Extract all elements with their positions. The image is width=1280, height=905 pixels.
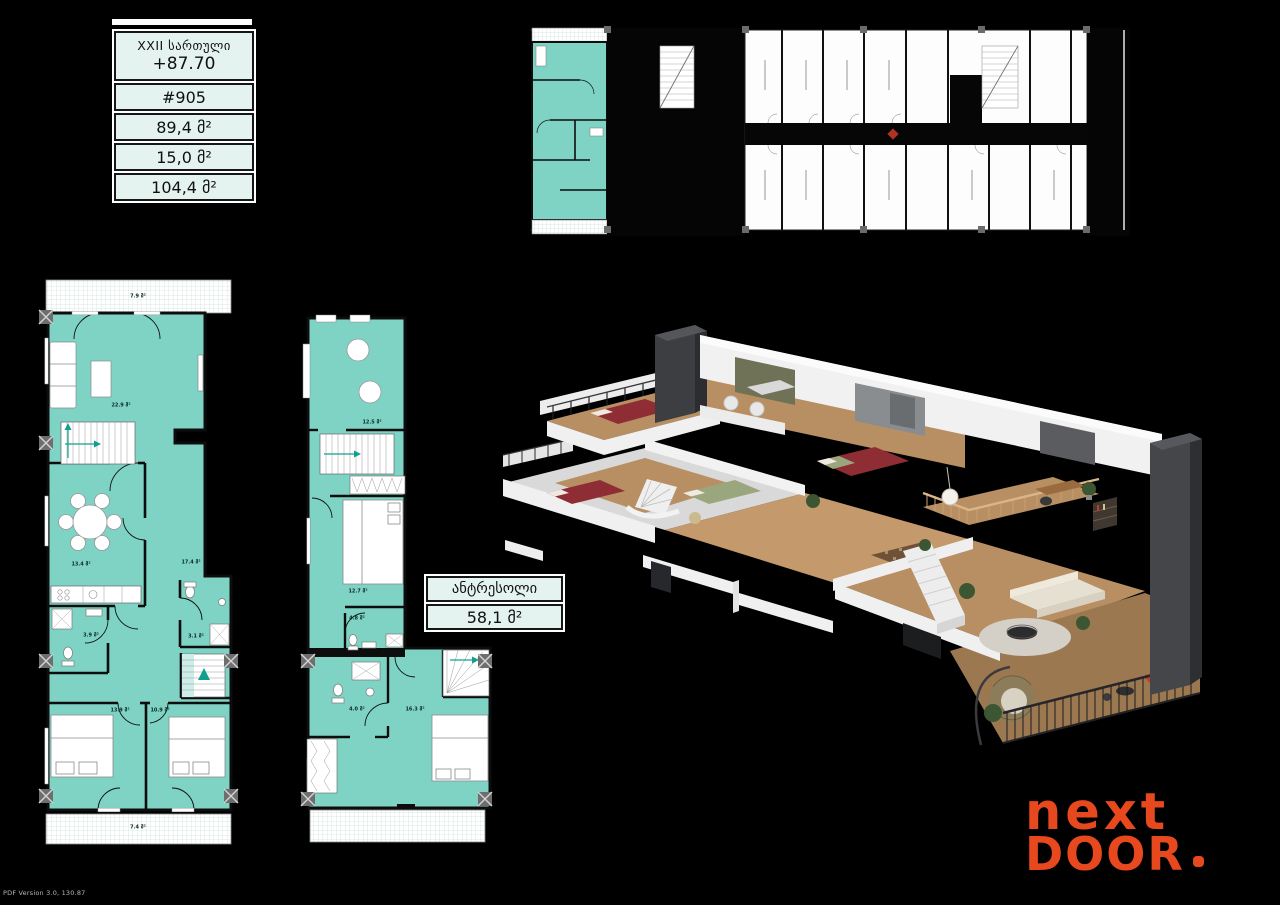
room-label: 7.4 მ² bbox=[130, 826, 146, 831]
floor-cell: XXII სართული +87.70 bbox=[114, 31, 254, 81]
bookshelf bbox=[1093, 497, 1117, 531]
room-label: 12.7 მ² bbox=[348, 590, 367, 595]
coffee-table bbox=[1007, 625, 1037, 640]
key-plan-highlighted-unit bbox=[532, 28, 607, 234]
unit-number: #905 bbox=[162, 88, 206, 107]
mezz-balcony bbox=[310, 810, 485, 842]
room-label: 22.9 მ² bbox=[111, 404, 130, 409]
total-area: 104,4 მ² bbox=[151, 178, 217, 197]
room-label: 7.9 მ² bbox=[130, 295, 146, 300]
mezz-stairs bbox=[320, 434, 394, 474]
dark-wardrobe-tower bbox=[655, 325, 707, 423]
bedroom-2-bed bbox=[169, 717, 225, 777]
total-area-cell: 104,4 მ² bbox=[114, 173, 254, 201]
room-label: 13.4 მ² bbox=[71, 563, 90, 568]
living-area-cell: 89,4 მ² bbox=[114, 113, 254, 141]
elevation-value: +87.70 bbox=[153, 54, 216, 74]
room-label: 12.5 მ² bbox=[362, 421, 381, 426]
room-label: 4.8 მ² bbox=[349, 617, 365, 622]
table-top-strip bbox=[112, 19, 252, 25]
wardrobe-top bbox=[350, 476, 405, 494]
key-plan-core bbox=[607, 28, 745, 236]
render-3d bbox=[495, 293, 1205, 753]
key-plan-units-band bbox=[745, 30, 1087, 230]
room-label: 17.4 მ² bbox=[181, 561, 200, 566]
key-plan-right-end bbox=[1087, 28, 1130, 236]
floor-key-plan bbox=[530, 20, 1130, 245]
unit-info-table: XXII სართული +87.70 #905 89,4 მ² 15,0 მ²… bbox=[112, 29, 256, 203]
room-label: 3.1 მ² bbox=[188, 635, 204, 640]
logo-dot-icon bbox=[1193, 856, 1204, 867]
room-label: 10.9 მ² bbox=[150, 709, 169, 714]
stairs-secondary bbox=[182, 654, 225, 697]
radiator bbox=[303, 344, 310, 398]
mezzanine-loft bbox=[923, 467, 1099, 525]
floor-label: XXII სართული bbox=[137, 38, 231, 53]
room-label: 4.0 მ² bbox=[349, 708, 365, 713]
room-label: 3.9 მ² bbox=[83, 634, 99, 639]
main-level-plan: 7.9 მ² 22.9 მ² 13.4 მ² 17.4 მ² 3.9 მ² 3.… bbox=[38, 268, 248, 848]
glass-balustrade bbox=[503, 439, 573, 467]
kitchen-counter bbox=[51, 586, 141, 603]
watermark-text: PDF Version 3.0, 130.87 bbox=[3, 889, 86, 897]
mezz-bedroom-1-bed bbox=[343, 500, 403, 584]
room-label: 16.3 მ² bbox=[405, 708, 424, 713]
bedroom-1-bed bbox=[51, 715, 113, 777]
room-label: 13.9 მ² bbox=[110, 709, 129, 714]
summer-area-cell: 15,0 მ² bbox=[114, 143, 254, 171]
flyer-page: XXII სართული +87.70 #905 89,4 მ² 15,0 მ²… bbox=[0, 0, 1280, 905]
stairs-main bbox=[61, 422, 135, 464]
mezz-bedroom-2-bed bbox=[432, 715, 488, 781]
unit-number-cell: #905 bbox=[114, 83, 254, 111]
living-area: 89,4 მ² bbox=[156, 118, 211, 137]
brand-logo: next DOOR bbox=[1025, 792, 1204, 873]
logo-line2: DOOR bbox=[1025, 835, 1185, 874]
wardrobe-left bbox=[307, 739, 337, 793]
summer-area: 15,0 მ² bbox=[156, 148, 211, 167]
right-tower bbox=[1150, 433, 1202, 695]
